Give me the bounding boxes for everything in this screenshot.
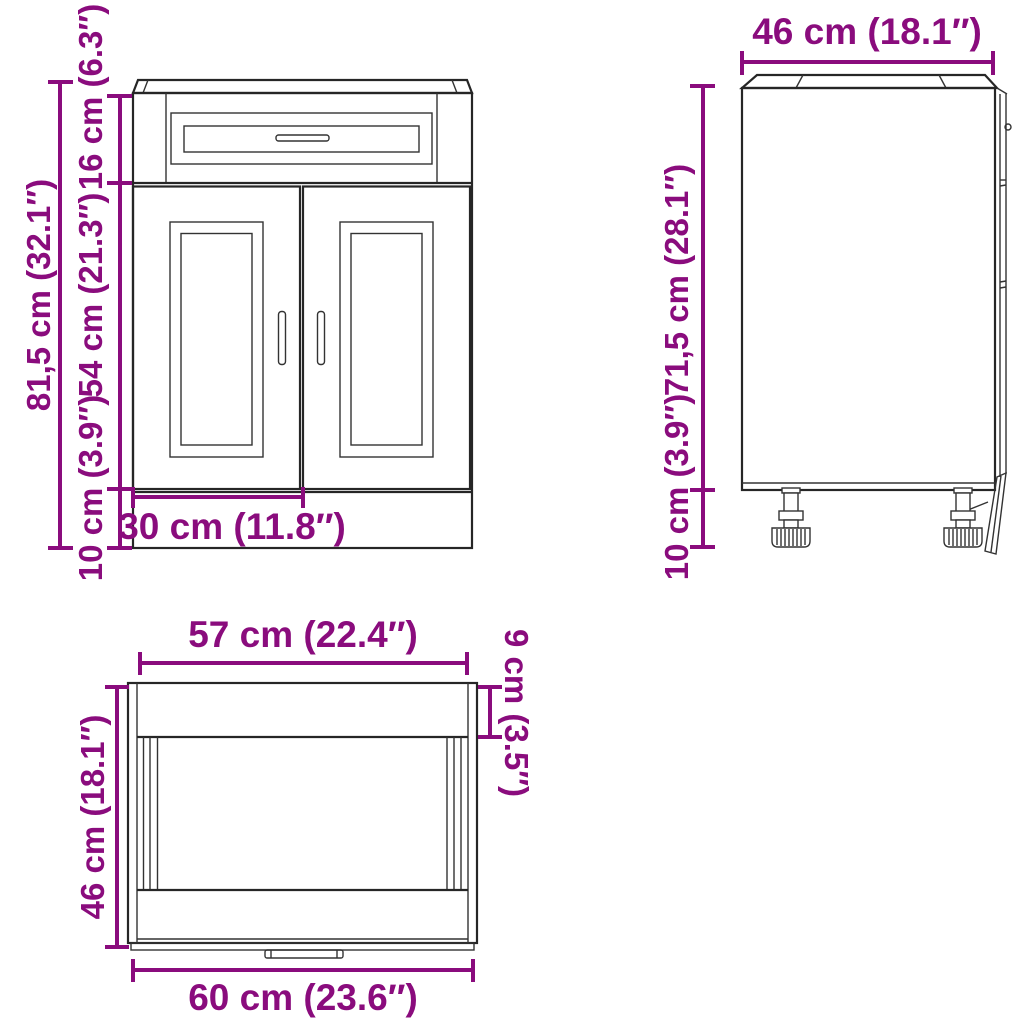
dim-front-drawer-height: 16 cm (6.3″) [72, 4, 132, 190]
top-edge-mitre-right [939, 75, 946, 88]
dim-side-feet-height: 10 cm (3.9″) [658, 394, 715, 580]
door-edge-top [997, 88, 1007, 94]
carcass-lines-right [447, 737, 461, 890]
foot-nut [779, 511, 803, 520]
dim-side-depth: 46 cm (18.1″) [742, 11, 993, 75]
dim-label-side-carcass-height: 71,5 cm (28.1″) [658, 164, 695, 396]
side-view: 46 cm (18.1″) 71,5 cm (28.1″) 10 cm (3.9… [658, 11, 1011, 580]
front-view: 81,5 cm (32.1″) 16 cm (6.3″) 54 cm (21.3… [20, 4, 472, 581]
right-door-panel [351, 234, 422, 446]
front-top-edge [133, 80, 472, 93]
top-view: 57 cm (22.4″) 9 cm (3.5″) 46 cm (18.1″) … [74, 614, 535, 1018]
adjustable-foot-left [772, 488, 810, 547]
dim-label-front-total-height: 81,5 cm (32.1″) [20, 179, 57, 411]
carcass-lines-left [144, 737, 158, 890]
dim-label-top-depth: 46 cm (18.1″) [74, 715, 111, 920]
top-edge-mitre-right [452, 80, 457, 93]
right-door-frame [340, 222, 433, 457]
handle-top-profile [265, 950, 343, 958]
left-door-frame [170, 222, 263, 457]
drawer-front-panel [184, 126, 419, 152]
drawer-handle [276, 135, 329, 141]
dim-label-front-door-height: 54 cm (21.3″) [72, 193, 109, 398]
dim-label-front-plinth-height: 10 cm (3.9″) [72, 395, 109, 581]
front-cabinet-drawing [133, 80, 472, 548]
diagram-canvas: 81,5 cm (32.1″) 16 cm (6.3″) 54 cm (21.3… [0, 0, 1024, 1024]
foot-stem-lower [956, 520, 970, 528]
drawer-front [171, 113, 432, 164]
dim-label-top-inner-width: 57 cm (22.4″) [188, 614, 418, 655]
dim-top-inner-width: 57 cm (22.4″) [140, 614, 467, 675]
foot-nut [951, 511, 975, 520]
foot-stem [956, 493, 970, 512]
left-door-handle [279, 312, 286, 365]
hinge-gap [1000, 185, 1006, 186]
top-outline [128, 683, 477, 943]
dim-front-door-width: 30 cm (11.8″) [118, 487, 346, 547]
side-top-edge [742, 75, 997, 88]
dim-top-front-edge-depth: 9 cm (3.5″) [478, 629, 535, 797]
foot-stem [784, 493, 798, 512]
dim-label-top-front-edge-depth: 9 cm (3.5″) [498, 629, 535, 797]
left-door [133, 187, 300, 490]
dim-label-side-depth: 46 cm (18.1″) [752, 11, 982, 52]
dim-label-side-feet-height: 10 cm (3.9″) [658, 394, 695, 580]
top-edge-mitre-left [143, 80, 148, 93]
right-door [303, 187, 470, 490]
left-door-panel [181, 234, 252, 446]
right-door-handle [318, 312, 325, 365]
adjustable-foot-right [944, 488, 982, 547]
side-panel [742, 88, 995, 490]
cabinet-dimension-diagram: 81,5 cm (32.1″) 16 cm (6.3″) 54 cm (21.3… [0, 0, 1024, 1024]
side-cabinet-drawing [742, 75, 1011, 554]
top-cabinet-drawing [128, 683, 477, 958]
dim-front-total-height: 81,5 cm (32.1″) [20, 82, 73, 548]
hinge-gap [1000, 287, 1006, 288]
foot-mount [782, 488, 800, 493]
top-edge-mitre-left [796, 75, 803, 88]
dim-top-total-width: 60 cm (23.6″) [133, 959, 473, 1018]
hinge-gap [1000, 281, 1006, 282]
dim-label-front-door-width: 30 cm (11.8″) [118, 506, 346, 547]
dim-label-top-total-width: 60 cm (23.6″) [188, 977, 418, 1018]
foot-mount [954, 488, 972, 493]
dim-label-front-drawer-height: 16 cm (6.3″) [72, 4, 109, 190]
foot-stem-lower [784, 520, 798, 528]
dim-top-depth: 46 cm (18.1″) [74, 687, 129, 947]
